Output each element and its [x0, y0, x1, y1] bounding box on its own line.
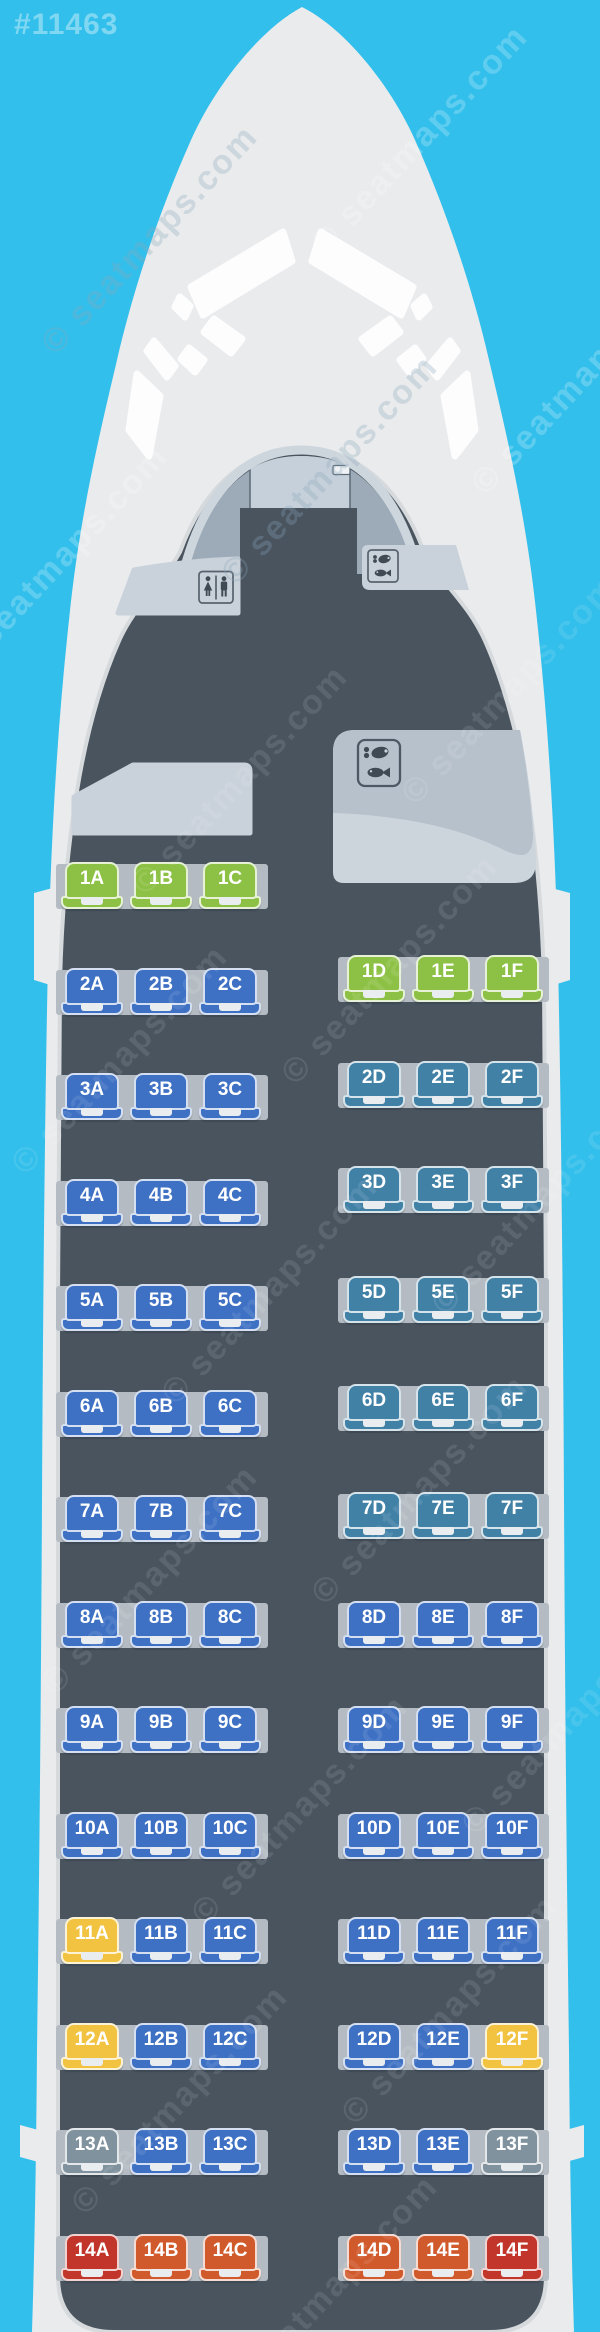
seat-7B[interactable]: 7B [134, 1495, 188, 1542]
headrest-notch [150, 1214, 172, 1222]
seat-label: 9E [416, 1706, 470, 1740]
seat-9A[interactable]: 9A [65, 1706, 119, 1753]
seat-label: 14D [347, 2234, 401, 2268]
seat-label: 12E [416, 2023, 470, 2057]
headrest-notch [501, 1847, 523, 1855]
seat-3C[interactable]: 3C [203, 1073, 257, 1120]
seat-14E[interactable]: 14E [416, 2234, 470, 2281]
headrest-notch [363, 1636, 385, 1644]
headrest-notch [150, 1319, 172, 1327]
seat-label: 8F [485, 1601, 539, 1635]
seat-label: 8E [416, 1601, 470, 1635]
headrest-notch [150, 1108, 172, 1116]
seat-label: 6E [416, 1384, 470, 1418]
seat-5D[interactable]: 5D [347, 1276, 401, 1323]
seat-label: 4B [134, 1179, 188, 1213]
seat-label: 4A [65, 1179, 119, 1213]
headrest-notch [150, 1425, 172, 1433]
seat-1C[interactable]: 1C [203, 862, 257, 909]
headrest-notch [81, 1425, 103, 1433]
headrest-notch [432, 2163, 454, 2171]
headrest-notch [219, 1214, 241, 1222]
seat-label: 13E [416, 2128, 470, 2162]
headrest-notch [363, 1952, 385, 1960]
seat-11D[interactable]: 11D [347, 1917, 401, 1964]
seat-label: 9D [347, 1706, 401, 1740]
headrest-notch [81, 1636, 103, 1644]
seat-label: 11C [203, 1917, 257, 1951]
seat-5A[interactable]: 5A [65, 1284, 119, 1331]
headrest-notch [501, 2269, 523, 2277]
seat-6C[interactable]: 6C [203, 1390, 257, 1437]
seat-12A[interactable]: 12A [65, 2023, 119, 2070]
seat-11A[interactable]: 11A [65, 1917, 119, 1964]
seat-label: 10A [65, 1812, 119, 1846]
headrest-notch [150, 1530, 172, 1538]
headrest-notch [219, 1319, 241, 1327]
seat-label: 2D [347, 1061, 401, 1095]
headrest-notch [363, 1527, 385, 1535]
seat-3B[interactable]: 3B [134, 1073, 188, 1120]
seat-10D[interactable]: 10D [347, 1812, 401, 1859]
headrest-notch [501, 1741, 523, 1749]
seat-label: 6B [134, 1390, 188, 1424]
seat-label: 10B [134, 1812, 188, 1846]
seat-12D[interactable]: 12D [347, 2023, 401, 2070]
seat-3F[interactable]: 3F [485, 1166, 539, 1213]
seat-label: 13C [203, 2128, 257, 2162]
seat-label: 6D [347, 1384, 401, 1418]
headrest-notch [501, 1419, 523, 1427]
seat-label: 12C [203, 2023, 257, 2057]
seat-label: 1F [485, 955, 539, 989]
seat-9D[interactable]: 9D [347, 1706, 401, 1753]
headrest-notch [363, 2163, 385, 2171]
seat-label: 2B [134, 968, 188, 1002]
headrest-notch [81, 1530, 103, 1538]
seat-13A[interactable]: 13A [65, 2128, 119, 2175]
seat-label: 11E [416, 1917, 470, 1951]
seat-12E[interactable]: 12E [416, 2023, 470, 2070]
seat-11B[interactable]: 11B [134, 1917, 188, 1964]
seat-label: 2F [485, 1061, 539, 1095]
seat-label: 8D [347, 1601, 401, 1635]
seat-3D[interactable]: 3D [347, 1166, 401, 1213]
seat-label: 2E [416, 1061, 470, 1095]
headrest-notch [363, 1847, 385, 1855]
seat-14C[interactable]: 14C [203, 2234, 257, 2281]
seat-label: 4C [203, 1179, 257, 1213]
headrest-notch [150, 2163, 172, 2171]
seat-12F[interactable]: 12F [485, 2023, 539, 2070]
seat-7A[interactable]: 7A [65, 1495, 119, 1542]
headrest-notch [219, 1425, 241, 1433]
seat-label: 7E [416, 1492, 470, 1526]
headrest-notch [219, 2269, 241, 2277]
headrest-notch [363, 2269, 385, 2277]
seat-4C[interactable]: 4C [203, 1179, 257, 1226]
headrest-notch [432, 1636, 454, 1644]
seat-label: 5D [347, 1276, 401, 1310]
seat-7E[interactable]: 7E [416, 1492, 470, 1539]
headrest-notch [501, 2058, 523, 2066]
headrest-notch [432, 1419, 454, 1427]
headrest-notch [501, 2163, 523, 2171]
seat-8C[interactable]: 8C [203, 1601, 257, 1648]
seat-label: 7F [485, 1492, 539, 1526]
headrest-notch [432, 1311, 454, 1319]
seat-11E[interactable]: 11E [416, 1917, 470, 1964]
seat-label: 3C [203, 1073, 257, 1107]
headrest-notch [219, 1741, 241, 1749]
seat-10A[interactable]: 10A [65, 1812, 119, 1859]
seat-label: 5F [485, 1276, 539, 1310]
seat-label: 5A [65, 1284, 119, 1318]
seat-label: 9C [203, 1706, 257, 1740]
headrest-notch [432, 1952, 454, 1960]
galley-front-block [362, 545, 469, 590]
seat-5B[interactable]: 5B [134, 1284, 188, 1331]
seat-label: 13F [485, 2128, 539, 2162]
headrest-notch [81, 1952, 103, 1960]
headrest-notch [81, 1003, 103, 1011]
seat-9B[interactable]: 9B [134, 1706, 188, 1753]
seat-4B[interactable]: 4B [134, 1179, 188, 1226]
seat-8D[interactable]: 8D [347, 1601, 401, 1648]
seat-label: 3E [416, 1166, 470, 1200]
headrest-notch [501, 1636, 523, 1644]
headrest-notch [432, 1096, 454, 1104]
seat-label: 11F [485, 1917, 539, 1951]
seat-label: 9F [485, 1706, 539, 1740]
headrest-notch [81, 1319, 103, 1327]
headrest-notch [363, 990, 385, 998]
seat-label: 3A [65, 1073, 119, 1107]
seat-12C[interactable]: 12C [203, 2023, 257, 2070]
headrest-notch [432, 990, 454, 998]
seat-label: 1C [203, 862, 257, 896]
seat-label: 13B [134, 2128, 188, 2162]
seat-2D[interactable]: 2D [347, 1061, 401, 1108]
seat-7F[interactable]: 7F [485, 1492, 539, 1539]
seat-6F[interactable]: 6F [485, 1384, 539, 1431]
seat-label: 11A [65, 1917, 119, 1951]
headrest-notch [81, 2269, 103, 2277]
seat-9F[interactable]: 9F [485, 1706, 539, 1753]
seat-label: 14A [65, 2234, 119, 2268]
seat-label: 5C [203, 1284, 257, 1318]
seat-label: 1B [134, 862, 188, 896]
seat-14D[interactable]: 14D [347, 2234, 401, 2281]
seat-13B[interactable]: 13B [134, 2128, 188, 2175]
seat-10E[interactable]: 10E [416, 1812, 470, 1859]
seat-10C[interactable]: 10C [203, 1812, 257, 1859]
headrest-notch [150, 1952, 172, 1960]
seat-3A[interactable]: 3A [65, 1073, 119, 1120]
seat-6A[interactable]: 6A [65, 1390, 119, 1437]
headrest-notch [501, 1527, 523, 1535]
seat-label: 14F [485, 2234, 539, 2268]
seat-label: 10D [347, 1812, 401, 1846]
seat-label: 2A [65, 968, 119, 1002]
seat-9E[interactable]: 9E [416, 1706, 470, 1753]
headrest-notch [363, 2058, 385, 2066]
seat-2F[interactable]: 2F [485, 1061, 539, 1108]
seat-label: 12F [485, 2023, 539, 2057]
headrest-notch [150, 897, 172, 905]
seat-label: 3F [485, 1166, 539, 1200]
seat-label: 8B [134, 1601, 188, 1635]
seat-6B[interactable]: 6B [134, 1390, 188, 1437]
seat-label: 1E [416, 955, 470, 989]
seat-label: 10E [416, 1812, 470, 1846]
seat-10B[interactable]: 10B [134, 1812, 188, 1859]
seat-14F[interactable]: 14F [485, 2234, 539, 2281]
seat-label: 3D [347, 1166, 401, 1200]
seat-7C[interactable]: 7C [203, 1495, 257, 1542]
seat-6E[interactable]: 6E [416, 1384, 470, 1431]
headrest-notch [219, 1952, 241, 1960]
seat-2B[interactable]: 2B [134, 968, 188, 1015]
seat-label: 8C [203, 1601, 257, 1635]
headrest-notch [219, 897, 241, 905]
seat-11C[interactable]: 11C [203, 1917, 257, 1964]
seat-14A[interactable]: 14A [65, 2234, 119, 2281]
headrest-notch [363, 1311, 385, 1319]
headrest-notch [150, 2058, 172, 2066]
seat-label: 2C [203, 968, 257, 1002]
headrest-notch [219, 1108, 241, 1116]
seat-2A[interactable]: 2A [65, 968, 119, 1015]
seat-8A[interactable]: 8A [65, 1601, 119, 1648]
seat-label: 9A [65, 1706, 119, 1740]
seat-label: 11B [134, 1917, 188, 1951]
headrest-notch [432, 2058, 454, 2066]
headrest-notch [150, 2269, 172, 2277]
seat-8E[interactable]: 8E [416, 1601, 470, 1648]
seat-1F[interactable]: 1F [485, 955, 539, 1002]
headrest-notch [432, 1201, 454, 1209]
seat-label: 9B [134, 1706, 188, 1740]
headrest-notch [219, 1847, 241, 1855]
headrest-notch [81, 2058, 103, 2066]
headrest-notch [81, 897, 103, 905]
headrest-notch [363, 1419, 385, 1427]
seat-label: 8A [65, 1601, 119, 1635]
galley-mid-block [333, 730, 536, 883]
cockpit-door [250, 456, 350, 512]
seat-4A[interactable]: 4A [65, 1179, 119, 1226]
seat-1D[interactable]: 1D [347, 955, 401, 1002]
seat-6D[interactable]: 6D [347, 1384, 401, 1431]
seat-label: 11D [347, 1917, 401, 1951]
door-handle-icon [333, 466, 350, 475]
headrest-notch [363, 1096, 385, 1104]
seat-label: 13D [347, 2128, 401, 2162]
seat-label: 12B [134, 2023, 188, 2057]
seat-2E[interactable]: 2E [416, 1061, 470, 1108]
headrest-notch [501, 1311, 523, 1319]
seat-label: 5E [416, 1276, 470, 1310]
headrest-notch [501, 990, 523, 998]
seat-map: #11463 1A1B1C1D1E1F2A2B2C2D2E2F3A3B3C3D3… [0, 0, 600, 2332]
headrest-notch [150, 1847, 172, 1855]
headrest-notch [219, 1636, 241, 1644]
seat-3E[interactable]: 3E [416, 1166, 470, 1213]
headrest-notch [81, 1741, 103, 1749]
headrest-notch [501, 1952, 523, 1960]
seat-5C[interactable]: 5C [203, 1284, 257, 1331]
headrest-notch [432, 1847, 454, 1855]
headrest-notch [81, 1847, 103, 1855]
seat-14B[interactable]: 14B [134, 2234, 188, 2281]
seat-label: 3B [134, 1073, 188, 1107]
seat-1E[interactable]: 1E [416, 955, 470, 1002]
seat-7D[interactable]: 7D [347, 1492, 401, 1539]
seat-13E[interactable]: 13E [416, 2128, 470, 2175]
seat-label: 12A [65, 2023, 119, 2057]
headrest-notch [81, 1108, 103, 1116]
seat-label: 10C [203, 1812, 257, 1846]
headrest-notch [150, 1636, 172, 1644]
seat-11F[interactable]: 11F [485, 1917, 539, 1964]
seat-1A[interactable]: 1A [65, 862, 119, 909]
headrest-notch [363, 1741, 385, 1749]
headrest-notch [363, 1201, 385, 1209]
headrest-notch [81, 2163, 103, 2171]
seat-label: 10F [485, 1812, 539, 1846]
seat-label: 6C [203, 1390, 257, 1424]
seat-13F[interactable]: 13F [485, 2128, 539, 2175]
headrest-notch [432, 1527, 454, 1535]
seat-label: 14E [416, 2234, 470, 2268]
headrest-notch [501, 1201, 523, 1209]
seat-13D[interactable]: 13D [347, 2128, 401, 2175]
map-id-label: #11463 [14, 8, 118, 42]
seat-1B[interactable]: 1B [134, 862, 188, 909]
headrest-notch [150, 1003, 172, 1011]
seat-label: 7D [347, 1492, 401, 1526]
seat-label: 7B [134, 1495, 188, 1529]
seat-8F[interactable]: 8F [485, 1601, 539, 1648]
headrest-notch [219, 2058, 241, 2066]
headrest-notch [501, 1096, 523, 1104]
headrest-notch [81, 1214, 103, 1222]
seat-label: 13A [65, 2128, 119, 2162]
headrest-notch [150, 1741, 172, 1749]
headrest-notch [432, 2269, 454, 2277]
seat-label: 7C [203, 1495, 257, 1529]
seat-label: 1A [65, 862, 119, 896]
headrest-notch [219, 2163, 241, 2171]
seat-label: 1D [347, 955, 401, 989]
seat-label: 6A [65, 1390, 119, 1424]
seat-label: 5B [134, 1284, 188, 1318]
seat-label: 14B [134, 2234, 188, 2268]
seat-10F[interactable]: 10F [485, 1812, 539, 1859]
headrest-notch [432, 1741, 454, 1749]
headrest-notch [219, 1530, 241, 1538]
seat-9C[interactable]: 9C [203, 1706, 257, 1753]
headrest-notch [219, 1003, 241, 1011]
seat-5E[interactable]: 5E [416, 1276, 470, 1323]
seat-2C[interactable]: 2C [203, 968, 257, 1015]
seat-label: 7A [65, 1495, 119, 1529]
seat-12B[interactable]: 12B [134, 2023, 188, 2070]
seat-8B[interactable]: 8B [134, 1601, 188, 1648]
seat-label: 12D [347, 2023, 401, 2057]
seat-label: 6F [485, 1384, 539, 1418]
seat-label: 14C [203, 2234, 257, 2268]
seat-5F[interactable]: 5F [485, 1276, 539, 1323]
seat-13C[interactable]: 13C [203, 2128, 257, 2175]
